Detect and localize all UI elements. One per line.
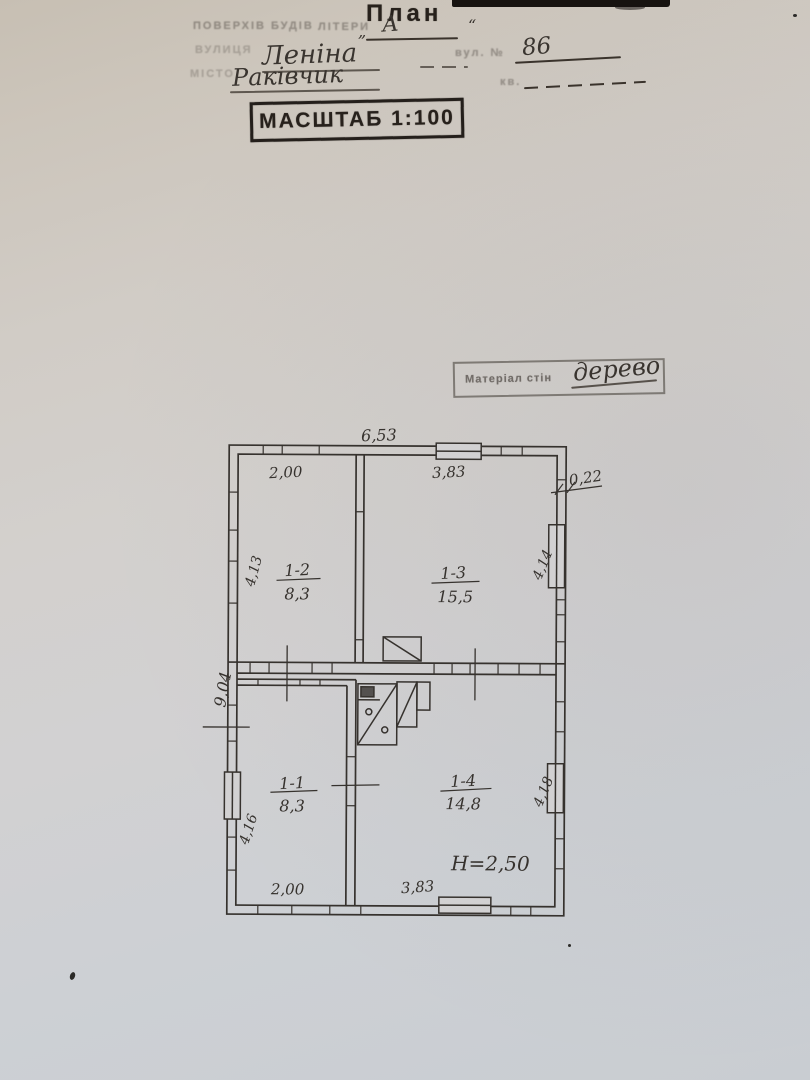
room-1-3-id: 1-3 (440, 563, 467, 583)
floor-plan-drawing: 6,53 2,00 3,83 0,22 4,13 4,14 9,04 4,16 … (187, 417, 634, 943)
apartment-label: кв. (500, 76, 521, 88)
photo-edge-smudge (615, 5, 645, 10)
form-litera-value: А (381, 11, 399, 37)
dim-top-overall: 6,53 (361, 425, 397, 445)
material-label: Матеріал стін (465, 372, 552, 386)
line2-dash-gap (420, 66, 468, 68)
room-1-4-area: 14,8 (445, 794, 481, 813)
form-litera-quote-open: „ (358, 22, 366, 41)
room-1-2-area: 8,3 (284, 584, 310, 603)
windows (224, 442, 565, 914)
dim-top-left: 2,00 (268, 463, 304, 483)
room-1-2-id: 1-2 (284, 560, 311, 580)
house-number-value: 86 (521, 33, 552, 61)
dim-bottom-left: 2,00 (270, 880, 305, 898)
ink-speck (568, 944, 571, 947)
settlement-value: Раківчик (232, 60, 344, 92)
dim-left-overall: 9,04 (210, 670, 235, 708)
form-line2-label: ВУЛИЦЯ (195, 44, 253, 56)
room-1-3-area: 15,5 (437, 587, 473, 606)
form-line3-label: МІСТО (190, 68, 235, 80)
scanned-plan-document: План ПОВЕРХІВ БУДІВ ЛІТЕРИ „ А “ ВУЛИЦЯ … (0, 0, 810, 1080)
house-number-label: вул. № (455, 47, 505, 59)
dim-top-right: 3,83 (432, 462, 466, 482)
page-title: План (366, 0, 442, 28)
room-1-4-id: 1-4 (450, 771, 477, 791)
ceiling-height-note: H=2,50 (450, 851, 530, 875)
ink-speck (793, 14, 797, 17)
dim-left-upper: 4,13 (242, 554, 266, 589)
apartment-underline (524, 81, 646, 89)
scale-stamp-box: МАСШТАБ 1:100 (250, 98, 465, 142)
wall-hatch-ticks (227, 445, 566, 916)
material-box: Матеріал стін дерево (453, 358, 666, 398)
form-litera-quote-close: “ (468, 16, 476, 35)
ink-speck (69, 971, 76, 980)
room-1-1-area: 8,3 (279, 796, 305, 815)
dim-bottom-right: 3,83 (400, 877, 434, 897)
form-litera-underline (366, 37, 458, 41)
stove-symbol (358, 637, 431, 745)
room-1-1-id: 1-1 (279, 773, 306, 793)
form-line1-label: ПОВЕРХІВ БУДІВ (193, 20, 314, 32)
walls (227, 445, 566, 916)
scale-stamp-text: МАСШТАБ 1:100 (259, 106, 455, 134)
